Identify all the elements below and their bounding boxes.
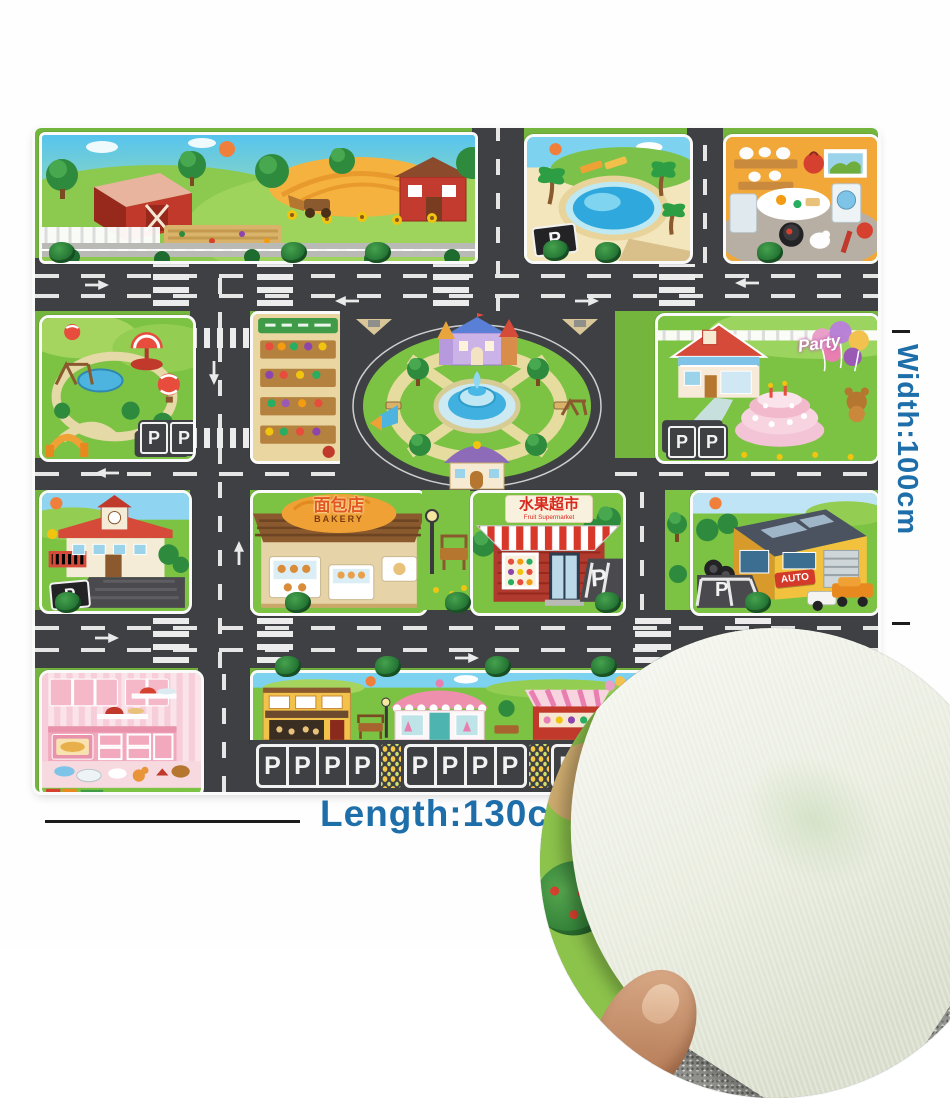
parking-stall: P: [259, 747, 289, 785]
tree-strip: [665, 490, 690, 610]
parking-stall-letter: P: [354, 752, 371, 781]
parking-stall: P: [698, 426, 726, 458]
produce-stand-zone: [250, 311, 346, 464]
parking-stall-letter: P: [472, 752, 489, 781]
party-house-parking: P P: [666, 424, 728, 460]
party-house-zone: P P Party: [655, 313, 878, 464]
playground-zone: P P: [39, 315, 196, 462]
lane-dashes: [703, 128, 707, 263]
bakery-sign-en: BAKERY: [281, 515, 397, 524]
width-tick-top: [892, 330, 910, 333]
parking-stall-letter: P: [412, 752, 429, 781]
crosswalk: [257, 264, 293, 306]
parking-stall: P: [407, 747, 437, 785]
crosswalk: [191, 328, 249, 348]
parking-stall: P: [497, 747, 524, 785]
crosswalk: [153, 616, 189, 663]
width-tick-bottom: [892, 622, 910, 625]
parking-stall-letter: P: [324, 752, 341, 781]
parking-group: P P P P: [404, 744, 527, 788]
parking-group: P P P P: [256, 744, 379, 788]
lane-dashes: [218, 258, 222, 668]
parking-stall: P: [437, 747, 467, 785]
supermarket-sign: 水果超市 Fruit Supermarket: [505, 495, 593, 523]
supermarket-sign-cn: 水果超市: [506, 497, 592, 514]
kitchen-room-illustration: [726, 137, 877, 261]
parking-stall-letter: P: [264, 752, 281, 781]
parking-stall-letter: P: [294, 752, 311, 781]
roundabout-plaza: [340, 311, 615, 491]
parking-letter: P: [676, 432, 688, 453]
lane-dashes: [640, 490, 644, 610]
pink-kitchen-zone: [39, 670, 204, 792]
parking-stall: P: [289, 747, 319, 785]
supermarket-parking-letter: P: [590, 564, 608, 593]
bakery-zone: 面包店 BAKERY: [250, 490, 428, 616]
parking-stall: P: [349, 747, 376, 785]
playground-parking: P P: [138, 420, 196, 456]
auto-shop-zone: AUTO P: [690, 490, 878, 616]
parking-stall: P: [170, 422, 196, 454]
parking-stall-letter: P: [502, 752, 519, 781]
parking-letter: P: [178, 428, 190, 449]
parking-stall-letter: P: [442, 752, 459, 781]
produce-stand-illustration: [253, 314, 343, 461]
length-line-left: [45, 820, 300, 823]
product-photo: P: [0, 0, 950, 950]
parking-stall: P: [668, 426, 696, 458]
bakery-sign-cn: 面包店: [281, 497, 397, 515]
lane-dashes: [613, 472, 878, 476]
farm-illustration: [42, 135, 475, 261]
crosswalk: [153, 264, 189, 306]
width-label: Width:100cm: [890, 344, 923, 535]
supermarket-sign-en: Fruit Supermarket: [510, 514, 587, 521]
pink-kitchen-illustration: [42, 673, 201, 792]
parking-stall: P: [319, 747, 349, 785]
folded-corner-inset-photo: [540, 628, 950, 1098]
crosswalk: [659, 264, 695, 306]
parking-stall: P: [467, 747, 497, 785]
parking-letter: P: [148, 428, 160, 449]
crosswalk: [433, 264, 469, 306]
farm-zone: [39, 132, 478, 264]
roundabout-illustration: [340, 311, 615, 491]
parking-letter: P: [706, 432, 718, 453]
auto-parking-letter: P: [715, 579, 728, 602]
flower-divider: [381, 744, 401, 788]
kitchen-room-zone: [723, 134, 878, 264]
crosswalk: [191, 428, 249, 448]
lane-dashes: [222, 668, 226, 792]
width-dimension: Width:100cm: [884, 322, 944, 638]
lane-dashes: [35, 472, 345, 476]
parking-stall: P: [140, 422, 168, 454]
tree-strip-illustration: [665, 490, 690, 610]
bakery-sign: 面包店 BAKERY: [281, 497, 397, 524]
lane-dashes: [496, 128, 500, 311]
